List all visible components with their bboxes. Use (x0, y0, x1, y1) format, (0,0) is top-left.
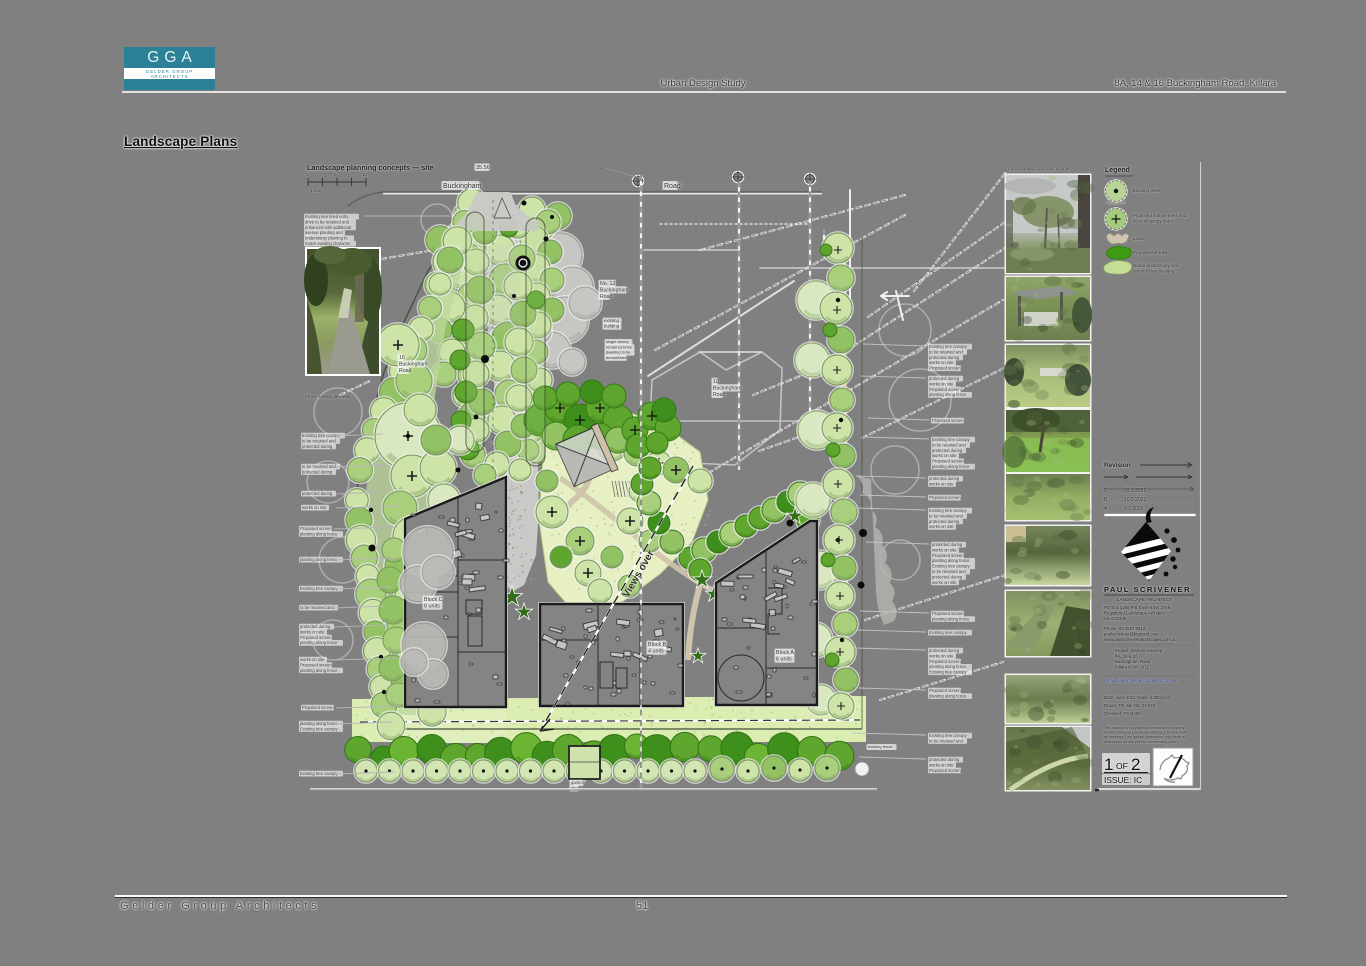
svg-text:to be retained and: to be retained and (302, 438, 336, 443)
svg-text:4 units: 4 units (648, 649, 664, 655)
svg-text:to be retained and: to be retained and (932, 442, 966, 447)
svg-text:dwelling to be: dwelling to be (606, 350, 631, 355)
svg-text:understorey planting to: understorey planting to (305, 236, 348, 241)
svg-text:10: 10 (362, 172, 368, 177)
svg-text:protected during: protected during (929, 355, 960, 360)
svg-text:works on site: works on site (929, 381, 954, 386)
svg-text:Existing tree canopy: Existing tree canopy (300, 586, 339, 591)
svg-text:Buckingham: Buckingham (600, 288, 629, 294)
svg-text:planting along fence: planting along fence (300, 721, 338, 726)
svg-text:planting along fence: planting along fence (929, 664, 967, 669)
svg-text:Registered Landscape Architect: Registered Landscape Architect (1104, 611, 1165, 616)
svg-text:building: building (604, 324, 620, 329)
svg-text:Proposed feature trees and: Proposed feature trees and (1133, 213, 1187, 218)
svg-text:works on site: works on site (932, 580, 957, 585)
svg-text:2: 2 (1131, 755, 1140, 774)
svg-text:Checked: PS North:: Checked: PS North: (1104, 711, 1142, 716)
svg-text:works on site: works on site (300, 657, 325, 662)
svg-text:garden: garden (571, 780, 585, 785)
svg-text:A: A (1104, 506, 1108, 512)
svg-text:ISSUE: IC: ISSUE: IC (1104, 775, 1142, 785)
svg-text:Proposed screen: Proposed screen (300, 635, 332, 640)
svg-text:works on site: works on site (929, 481, 954, 486)
svg-text:Legend: Legend (1105, 167, 1130, 174)
svg-text:paulscrivener@bigpond.com: paulscrivener@bigpond.com (1104, 632, 1159, 637)
svg-text:Existing trees: Existing trees (1133, 188, 1161, 193)
svg-text:Proposed screen: Proposed screen (932, 459, 964, 464)
svg-text:planting along fence: planting along fence (932, 464, 970, 469)
svg-text:1:250: 1:250 (310, 188, 322, 193)
svg-text:No. 12: No. 12 (600, 281, 615, 287)
svg-text:works on site: works on site (929, 762, 954, 767)
svg-text:match existing character: match existing character (305, 241, 351, 246)
svg-text:Existing tree canopy: Existing tree canopy (929, 670, 968, 675)
svg-text:single storey: single storey (606, 339, 628, 344)
svg-text:Buckingham: Buckingham (443, 183, 482, 190)
svg-text:to be retained and: to be retained and (929, 738, 963, 743)
svg-text:PSLA: PSLA (1165, 744, 1176, 749)
svg-text:enhanced with additional: enhanced with additional (305, 225, 351, 230)
svg-text:to be retained and: to be retained and (932, 569, 966, 574)
svg-text:Proposed screen: Proposed screen (929, 387, 961, 392)
svg-text:PO Box 4365 Pitt Town NSW 2: PO Box 4365 Pitt Town NSW 2756 (1104, 605, 1171, 610)
svg-text:Proposed screen: Proposed screen (300, 526, 332, 531)
svg-text:Proposed screen: Proposed screen (929, 659, 961, 664)
svg-text:Existing tree canopy: Existing tree canopy (929, 344, 968, 349)
svg-text:LANDSCAPE ARCHITECT: LANDSCAPE ARCHITECT (1117, 597, 1172, 602)
svg-text:works on site: works on site (929, 653, 954, 658)
svg-text:Block A: Block A (776, 650, 794, 656)
svg-text:planting along fence: planting along fence (932, 616, 970, 621)
svg-text:planting along fence: planting along fence (300, 668, 338, 673)
svg-text:Drawn: PS Job No: 2: Drawn: PS Job No: 21-043 (1104, 703, 1156, 708)
svg-text:protected during: protected during (929, 476, 960, 481)
svg-text:Landscape planning concepts —: Landscape planning concepts — site (307, 163, 434, 172)
svg-text:Road: Road (713, 392, 726, 398)
svg-text:Block C: Block C (424, 597, 443, 603)
svg-text:Block B: Block B (648, 642, 667, 648)
svg-text:Landscaping character images: Landscaping character images (1008, 166, 1071, 171)
svg-text:protected during: protected during (929, 519, 960, 524)
svg-text:works on site: works on site (302, 505, 327, 510)
svg-text:Existing tree canopy: Existing tree canopy (929, 733, 968, 738)
svg-text:1: 1 (1104, 755, 1113, 774)
svg-text:demolished: demolished (606, 355, 626, 360)
svg-text:avenue planting and: avenue planting and (305, 230, 343, 235)
svg-text:This drawing is copyright and: This drawing is copyright and remains th… (1104, 726, 1185, 730)
svg-text:9.3.2020: 9.3.2020 (1124, 506, 1144, 512)
svg-text:Existing tree canopy: Existing tree canopy (300, 726, 339, 731)
svg-text:5: 5 (334, 172, 337, 177)
svg-text:AILA 02345: AILA 02345 (1104, 616, 1127, 621)
svg-text:Lawn: Lawn (1133, 236, 1144, 241)
svg-text:Proposed screen: Proposed screen (929, 495, 961, 500)
svg-text:protected during: protected during (929, 757, 960, 762)
svg-text:protected during: protected during (929, 376, 960, 381)
svg-text:Proposed screen: Proposed screen (932, 611, 964, 616)
svg-text:works on site: works on site (929, 360, 954, 365)
svg-text:Proposed shrubs: Proposed shrubs (1133, 250, 1168, 255)
svg-text:Revision: Revision (1104, 462, 1131, 469)
svg-text:PAUL SCRIVENER: PAUL SCRIVENER (1104, 585, 1191, 594)
svg-text:Project: Seniors Housing: Project: Seniors Housing (1115, 648, 1163, 653)
svg-text:Road: Road (399, 368, 412, 374)
svg-text:0: 0 (306, 172, 309, 177)
svg-text:works on site: works on site (932, 453, 957, 458)
svg-text:Existing tree canopy: Existing tree canopy (929, 630, 968, 635)
svg-text:Proposed screen: Proposed screen (929, 366, 961, 371)
svg-text:to be retained and: to be retained and (929, 349, 963, 354)
svg-text:Proposed screen: Proposed screen (929, 768, 961, 773)
svg-text:Proposed screen: Proposed screen (932, 553, 964, 558)
svg-text:works on site: works on site (300, 629, 325, 634)
svg-text:Existing tree canopy: Existing tree canopy (932, 564, 971, 569)
svg-text:Photo: existing driveway: Photo: existing driveway (305, 394, 351, 399)
svg-text:Buckingham: Buckingham (399, 362, 428, 368)
svg-text:Buckingham: Buckingham (713, 386, 742, 392)
svg-text:10: 10 (713, 379, 719, 385)
svg-text:B: B (1104, 497, 1108, 503)
svg-text:Road: Road (664, 183, 681, 190)
svg-text:existing fence: existing fence (868, 744, 893, 749)
svg-text:6 units: 6 units (424, 604, 440, 610)
svg-text:Existing tree lined entry: Existing tree lined entry (305, 214, 349, 219)
svg-text:works on site: works on site (929, 524, 954, 529)
svg-text:planting along fence: planting along fence (300, 531, 338, 536)
svg-text:Proposed screen: Proposed screen (929, 688, 961, 693)
svg-text:www.paulscrivenerlandscapes.co: www.paulscrivenerlandscapes.com.au (1104, 637, 1177, 642)
svg-text:to be retained and: to be retained and (929, 513, 963, 518)
svg-text:Proposed screen: Proposed screen (302, 705, 334, 710)
svg-text:Native understorey and: Native understorey and (1133, 263, 1179, 268)
svg-text:protected during: protected during (302, 444, 333, 449)
svg-text:planting along fence: planting along fence (929, 392, 967, 397)
svg-text:to be retained and: to be retained and (302, 464, 336, 469)
svg-text:planting along fence: planting along fence (300, 640, 338, 645)
svg-text:protected during: protected during (302, 491, 333, 496)
svg-text:protected during: protected during (300, 624, 331, 629)
svg-text:Email: paulscrivener@bigpond.c: Email: paulscrivener@bigpond.com.au (1104, 678, 1178, 683)
svg-text:6 units: 6 units (776, 657, 792, 663)
svg-text:Existing tree canopy: Existing tree canopy (932, 437, 971, 442)
svg-text:groundcover planting: groundcover planting (1133, 269, 1175, 274)
svg-text:Killara NSW 2071: Killara NSW 2071 (1115, 665, 1150, 670)
svg-text:screen/canopy trees: screen/canopy trees (1133, 219, 1173, 224)
svg-text:planting along fence: planting along fence (300, 557, 338, 562)
svg-text:Date: June 2021 Scale:: Date: June 2021 Scale: 1:250@A1 (1104, 695, 1171, 700)
svg-text:10.5.2021: 10.5.2021 (1124, 497, 1146, 503)
svg-text:8A, 14 & 16: 8A, 14 & 16 (1115, 654, 1138, 659)
svg-text:35.56: 35.56 (476, 165, 490, 171)
svg-text:planting along fence: planting along fence (929, 693, 967, 698)
svg-text:to be retained and: to be retained and (300, 605, 334, 610)
svg-text:off drawings. Use figured dime: off drawings. Use figured dimensions onl… (1104, 735, 1186, 739)
svg-text:protected during: protected during (932, 574, 963, 579)
svg-text:protected during: protected during (932, 448, 963, 453)
svg-text:Proposed screen: Proposed screen (932, 418, 964, 423)
svg-text:of Paul Scrivener Landscape Ar: of Paul Scrivener Landscape Architect. D… (1104, 731, 1187, 735)
svg-text:rendered brick: rendered brick (606, 344, 632, 349)
svg-text:Existing tree canopy: Existing tree canopy (300, 771, 339, 776)
svg-text:Existing tree canopy: Existing tree canopy (302, 433, 341, 438)
svg-text:Existing tree canopy: Existing tree canopy (929, 508, 968, 513)
svg-text:Proposed screen: Proposed screen (300, 662, 332, 667)
svg-text:existing: existing (604, 318, 619, 323)
svg-text:Phone: 02 4567 8912: Phone: 02 4567 8912 (1104, 626, 1146, 631)
svg-text:planting along fence: planting along fence (932, 558, 970, 563)
svg-text:OF: OF (1116, 761, 1128, 771)
svg-text:works on site: works on site (932, 547, 957, 552)
svg-text:Road: Road (600, 294, 613, 300)
svg-text:protected during: protected during (932, 542, 963, 547)
svg-text:protected during: protected during (929, 648, 960, 653)
svg-text:16: 16 (399, 355, 405, 361)
svg-text:Buckingham Road: Buckingham Road (1115, 659, 1151, 664)
svg-text:protected during: protected during (302, 469, 333, 474)
svg-text:drive to be retained and: drive to be retained and (305, 219, 350, 224)
